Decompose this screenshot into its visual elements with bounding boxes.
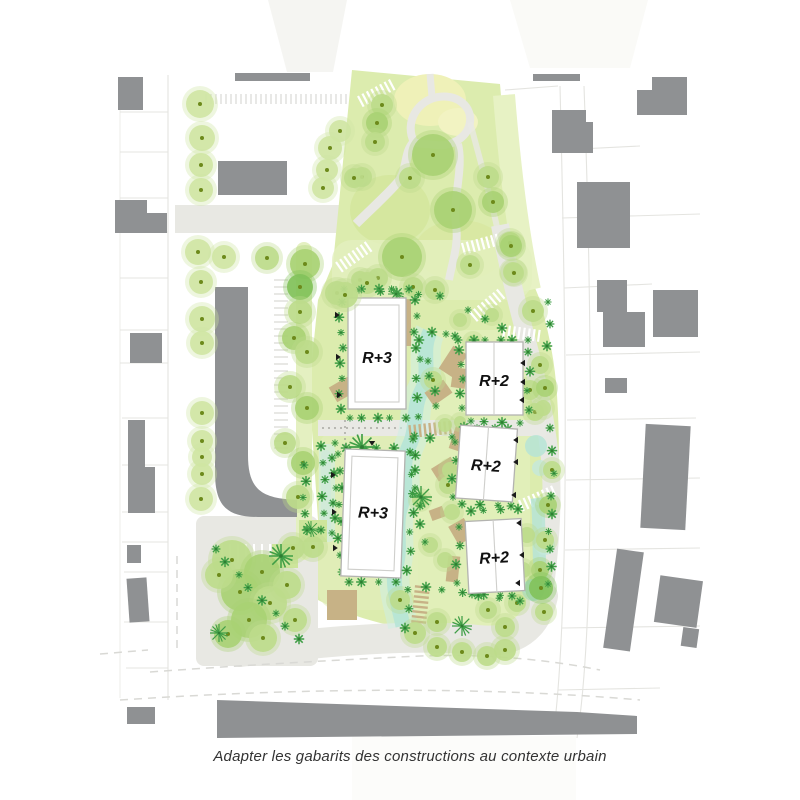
building-height-label-r2-middle: R+2 bbox=[470, 457, 501, 476]
building-r2-north: R+2 bbox=[466, 342, 523, 415]
caption-text: Adapter les gabarits des constructions a… bbox=[213, 748, 606, 765]
building-r3-north: R+3 bbox=[348, 298, 406, 409]
building-height-label-r2-south: R+2 bbox=[479, 549, 510, 568]
building-r2-middle: R+2 bbox=[455, 425, 517, 502]
building-height-label-r3-north: R+3 bbox=[362, 350, 392, 367]
building-r2-south: R+2 bbox=[465, 519, 525, 594]
site-plan-drawing: R+3 R+3 R+2 R+2 R+2 bbox=[0, 0, 800, 800]
building-r3-south: R+3 bbox=[341, 449, 405, 578]
building-height-label-r2-north: R+2 bbox=[479, 373, 509, 390]
overlapping-trees-layer bbox=[328, 278, 362, 312]
building-height-label-r3-south: R+3 bbox=[358, 504, 388, 522]
site-plan-figure: R+3 R+3 R+2 R+2 R+2 Adapter les gabarits… bbox=[0, 0, 800, 800]
